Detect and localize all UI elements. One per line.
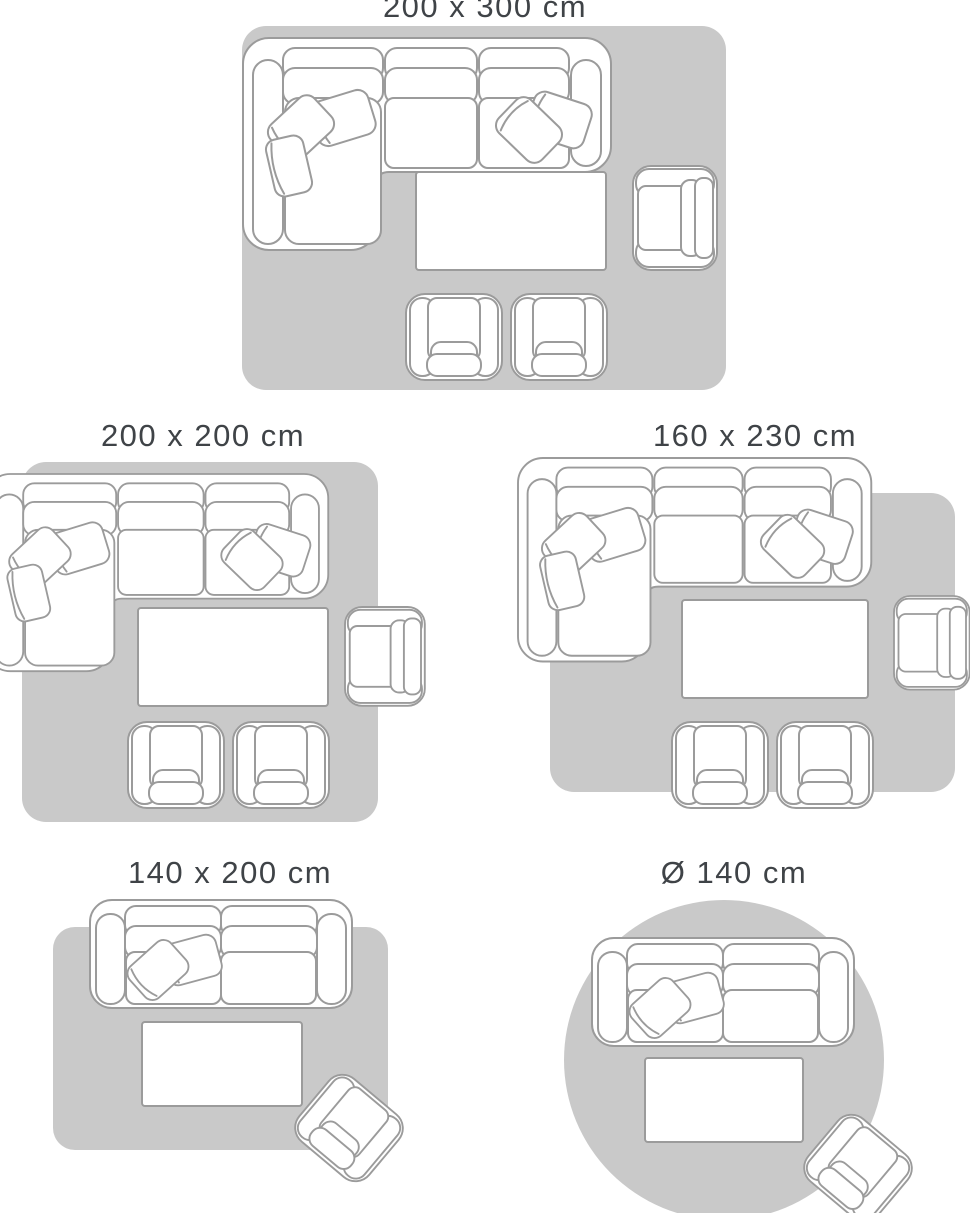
lounge-chair-icon <box>406 294 502 380</box>
armchair-icon <box>633 166 717 270</box>
armchair-icon <box>345 607 425 706</box>
rug-size-guide: 200 x 300 cm 200 x 200 cm 160 x 230 cm 1… <box>0 0 970 1213</box>
armchair-icon <box>894 596 970 690</box>
size-guide-illustration <box>0 0 970 1213</box>
two-seat-sofa-icon <box>592 938 854 1046</box>
diagram-140x200 <box>53 900 410 1189</box>
coffee-table-icon <box>416 172 606 270</box>
rug-size-label: 140 x 200 cm <box>128 857 332 888</box>
rug-size-label: Ø 140 cm <box>661 857 807 888</box>
diagram-round-140 <box>564 900 919 1213</box>
two-seat-sofa-icon <box>90 900 352 1008</box>
coffee-table-icon <box>142 1022 302 1106</box>
coffee-table-icon <box>682 600 868 698</box>
lounge-chair-icon <box>777 722 873 808</box>
diagram-200x200 <box>0 462 425 822</box>
rug-size-label: 200 x 300 cm <box>383 0 587 22</box>
coffee-table-icon <box>645 1058 803 1142</box>
lounge-chair-icon <box>672 722 768 808</box>
lounge-chair-icon <box>128 722 224 808</box>
rug-size-label: 160 x 230 cm <box>653 420 857 451</box>
diagram-200x300 <box>242 26 726 390</box>
rug-size-label: 200 x 200 cm <box>101 420 305 451</box>
lounge-chair-icon <box>511 294 607 380</box>
diagram-160x230 <box>518 458 970 808</box>
coffee-table-icon <box>138 608 328 706</box>
lounge-chair-icon <box>233 722 329 808</box>
